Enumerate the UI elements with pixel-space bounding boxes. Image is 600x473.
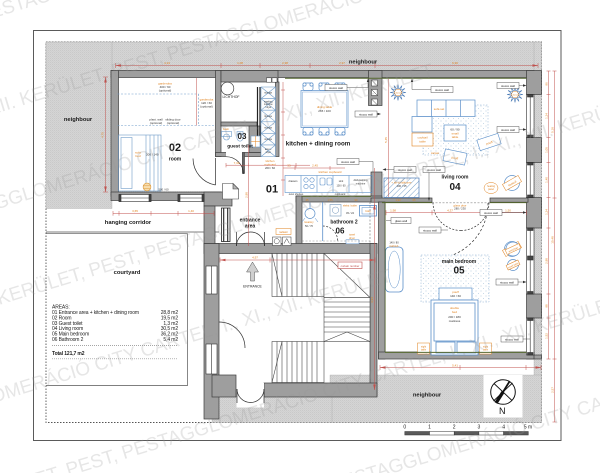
svg-text:01: 01 [266, 184, 278, 196]
svg-text:bathroom 2: bathroom 2 [330, 220, 357, 226]
svg-text:stucco wall: stucco wall [423, 228, 437, 232]
svg-text:1: 1 [428, 425, 431, 431]
svg-text:2,57: 2,57 [551, 387, 555, 393]
svg-text:neighbour: neighbour [349, 60, 378, 66]
svg-text:0: 0 [403, 425, 406, 431]
svg-text:5,41: 5,41 [452, 363, 458, 367]
svg-text:4,97: 4,97 [252, 256, 258, 260]
svg-text:98: 98 [545, 304, 549, 308]
svg-text:7,33: 7,33 [234, 161, 240, 165]
svg-text:2: 2 [453, 425, 456, 431]
svg-text:dryer: dryer [266, 151, 271, 154]
svg-text:chand.: chand. [512, 95, 519, 97]
svg-text:1,05: 1,05 [545, 147, 549, 153]
svg-text:1,93: 1,93 [395, 198, 401, 202]
svg-text:2,38: 2,38 [282, 61, 288, 65]
svg-text:ENTRANCE: ENTRANCE [243, 285, 262, 289]
svg-text:N: N [499, 406, 506, 416]
svg-text:main bedroom: main bedroom [442, 259, 477, 265]
svg-text:50 / 70: 50 / 70 [305, 224, 313, 228]
svg-text:2,97: 2,97 [339, 61, 345, 65]
svg-text:(optional): (optional) [167, 121, 180, 125]
svg-text:mattress: mattress [449, 319, 461, 323]
svg-text:140 / 80: 140 / 80 [389, 241, 399, 245]
svg-text:1,98: 1,98 [390, 208, 396, 212]
svg-text:LICHTHOF: LICHTHOF [223, 95, 240, 99]
svg-text:airer +: airer + [265, 148, 272, 151]
svg-text:06 Bathroom 2: 06 Bathroom 2 [52, 337, 84, 343]
svg-text:neighbour: neighbour [64, 117, 93, 123]
svg-text:dryer: dryer [349, 236, 355, 240]
svg-text:140 / 60: 140 / 60 [450, 294, 461, 298]
svg-text:stucco wall: stucco wall [484, 211, 498, 215]
svg-text:panel: panel [488, 188, 494, 191]
svg-text:2,88: 2,88 [545, 258, 549, 264]
svg-text:5,45: 5,45 [384, 137, 388, 143]
svg-text:2,88: 2,88 [244, 192, 248, 198]
svg-text:machine: machine [264, 104, 273, 106]
svg-text:radiator: radiator [279, 230, 288, 234]
svg-text:1,40: 1,40 [188, 209, 194, 213]
svg-text:10,48: 10,48 [551, 236, 555, 244]
svg-text:living room: living room [442, 175, 470, 181]
svg-text:stucco wall: stucco wall [435, 88, 449, 92]
svg-text:stucco wall: stucco wall [359, 112, 373, 116]
svg-text:bed: bed [452, 310, 457, 314]
svg-text:(optional): (optional) [159, 89, 172, 93]
svg-text:washing: washing [264, 102, 273, 104]
svg-text:1,50: 1,50 [505, 208, 511, 212]
svg-text:3,94: 3,94 [370, 297, 374, 303]
svg-text:2,45: 2,45 [312, 164, 318, 168]
svg-text:neighbour: neighbour [413, 393, 442, 399]
svg-text:kitchen cupboard: kitchen cupboard [319, 170, 342, 174]
svg-text:6,30: 6,30 [452, 61, 458, 65]
svg-text:3,65: 3,65 [132, 209, 138, 213]
svg-text:05: 05 [453, 266, 465, 277]
svg-text:storage: storage [264, 138, 272, 141]
svg-text:drawers: drawers [289, 180, 299, 183]
svg-text:1,24: 1,24 [545, 209, 549, 215]
svg-text:chand.: chand. [395, 93, 402, 95]
svg-text:1,08: 1,08 [237, 61, 243, 65]
svg-text:table: table [419, 140, 426, 144]
svg-text:280 / 230: 280 / 230 [454, 207, 466, 211]
svg-text:curtain number: curtain number [341, 264, 360, 268]
svg-text:stucco wall: stucco wall [341, 160, 355, 164]
svg-text:Total 121,7 m2: Total 121,7 m2 [52, 351, 85, 357]
svg-text:1,24: 1,24 [545, 113, 549, 119]
svg-text:glass wall: glass wall [395, 219, 408, 223]
svg-text:06: 06 [336, 227, 345, 236]
svg-text:storage: storage [264, 92, 272, 95]
svg-text:4,75: 4,75 [101, 132, 105, 138]
svg-text:stucco wall: stucco wall [501, 84, 515, 88]
svg-text:guest toilet: guest toilet [227, 144, 253, 150]
svg-text:table: table [452, 135, 459, 139]
svg-text:(optional): (optional) [150, 121, 163, 125]
svg-text:hanging corridor: hanging corridor [105, 220, 152, 226]
svg-text:kitchen + dining room: kitchen + dining room [286, 141, 351, 148]
svg-text:stucco wall: stucco wall [500, 280, 514, 284]
svg-text:1,40: 1,40 [545, 177, 549, 183]
svg-text:4,37: 4,37 [447, 208, 453, 212]
svg-text:260 / 60: 260 / 60 [265, 166, 276, 170]
svg-text:04: 04 [449, 182, 461, 193]
svg-text:bathtub: bathtub [390, 244, 399, 248]
svg-text:500 / 60: 500 / 60 [158, 188, 169, 192]
svg-text:lavatory: lavatory [304, 220, 314, 224]
svg-text:96: 96 [545, 82, 549, 86]
svg-text:sofa set: sofa set [434, 107, 445, 111]
svg-text:(optional): (optional) [200, 105, 213, 109]
svg-text:45 / 24: 45 / 24 [346, 211, 354, 215]
svg-text:55: 55 [287, 164, 291, 168]
